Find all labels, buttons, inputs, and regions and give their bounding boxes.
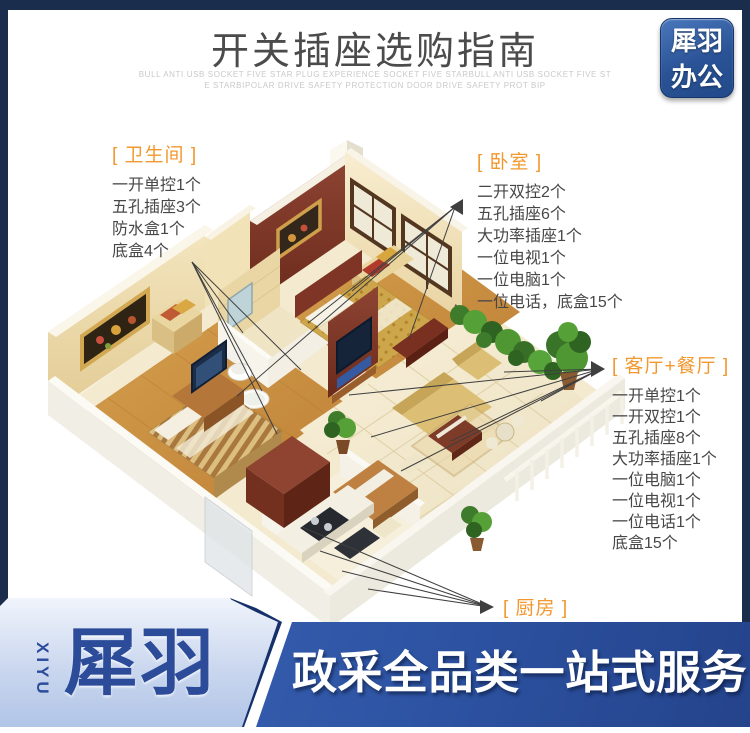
bedroom-label: [ 卧室 ] xyxy=(477,147,623,174)
bedroom-list: 二开双控2个 五孔插座6个 大功率插座1个 一位电视1个 一位电脑1个 一位电话… xyxy=(477,182,623,314)
brand-name: 犀羽 xyxy=(64,626,216,700)
list-item: 五孔插座8个 xyxy=(612,428,729,449)
list-item: 二开双控2个 xyxy=(477,182,623,204)
list-item: 底盒4个 xyxy=(112,241,201,263)
list-item: 底盒15个 xyxy=(612,533,729,554)
list-item: 一开单控1个 xyxy=(612,386,729,407)
list-item: 一位电视1个 xyxy=(612,491,729,512)
list-item: 一位电话1个 xyxy=(612,512,729,533)
list-item: 一位电话，底盒15个 xyxy=(477,292,623,314)
list-item: 防水盒1个 xyxy=(112,219,201,241)
promo-image: 开关插座选购指南 BULL ANTI USB SOCKET FIVE STAR … xyxy=(0,0,750,733)
banner-slogan: 政采全品类一站式服务 xyxy=(292,636,744,701)
list-item: 一开双控1个 xyxy=(612,407,729,428)
list-item: 一位电视1个 xyxy=(477,248,623,270)
bedroom-annotation: [ 卧室 ] 二开双控2个 五孔插座6个 大功率插座1个 一位电视1个 一位电脑… xyxy=(477,147,623,314)
bathroom-label: [ 卫生间 ] xyxy=(112,140,201,167)
list-item: 一位电脑1个 xyxy=(477,270,623,292)
bathroom-annotation: [ 卫生间 ] 一开单控1个 五孔插座3个 防水盒1个 底盒4个 xyxy=(112,140,201,263)
living-dining-label: [ 客厅+餐厅 ] xyxy=(612,351,729,378)
list-item: 一开单控1个 xyxy=(112,175,201,197)
list-item: 五孔插座3个 xyxy=(112,197,201,219)
list-item: 大功率插座1个 xyxy=(612,449,729,470)
living-dining-annotation: [ 客厅+餐厅 ] 一开单控1个 一开双控1个 五孔插座8个 大功率插座1个 一… xyxy=(612,351,729,554)
list-item: 五孔插座6个 xyxy=(477,204,623,226)
footer-banner: XIYU 犀羽 政采全品类一站式服务 xyxy=(0,596,750,733)
living-dining-list: 一开单控1个 一开双控1个 五孔插座8个 大功率插座1个 一位电脑1个 一位电视… xyxy=(612,386,729,554)
bathroom-list: 一开单控1个 五孔插座3个 防水盒1个 底盒4个 xyxy=(112,175,201,263)
list-item: 大功率插座1个 xyxy=(477,226,623,248)
brand-vertical-text: XIYU xyxy=(32,642,52,698)
list-item: 一位电脑1个 xyxy=(612,470,729,491)
